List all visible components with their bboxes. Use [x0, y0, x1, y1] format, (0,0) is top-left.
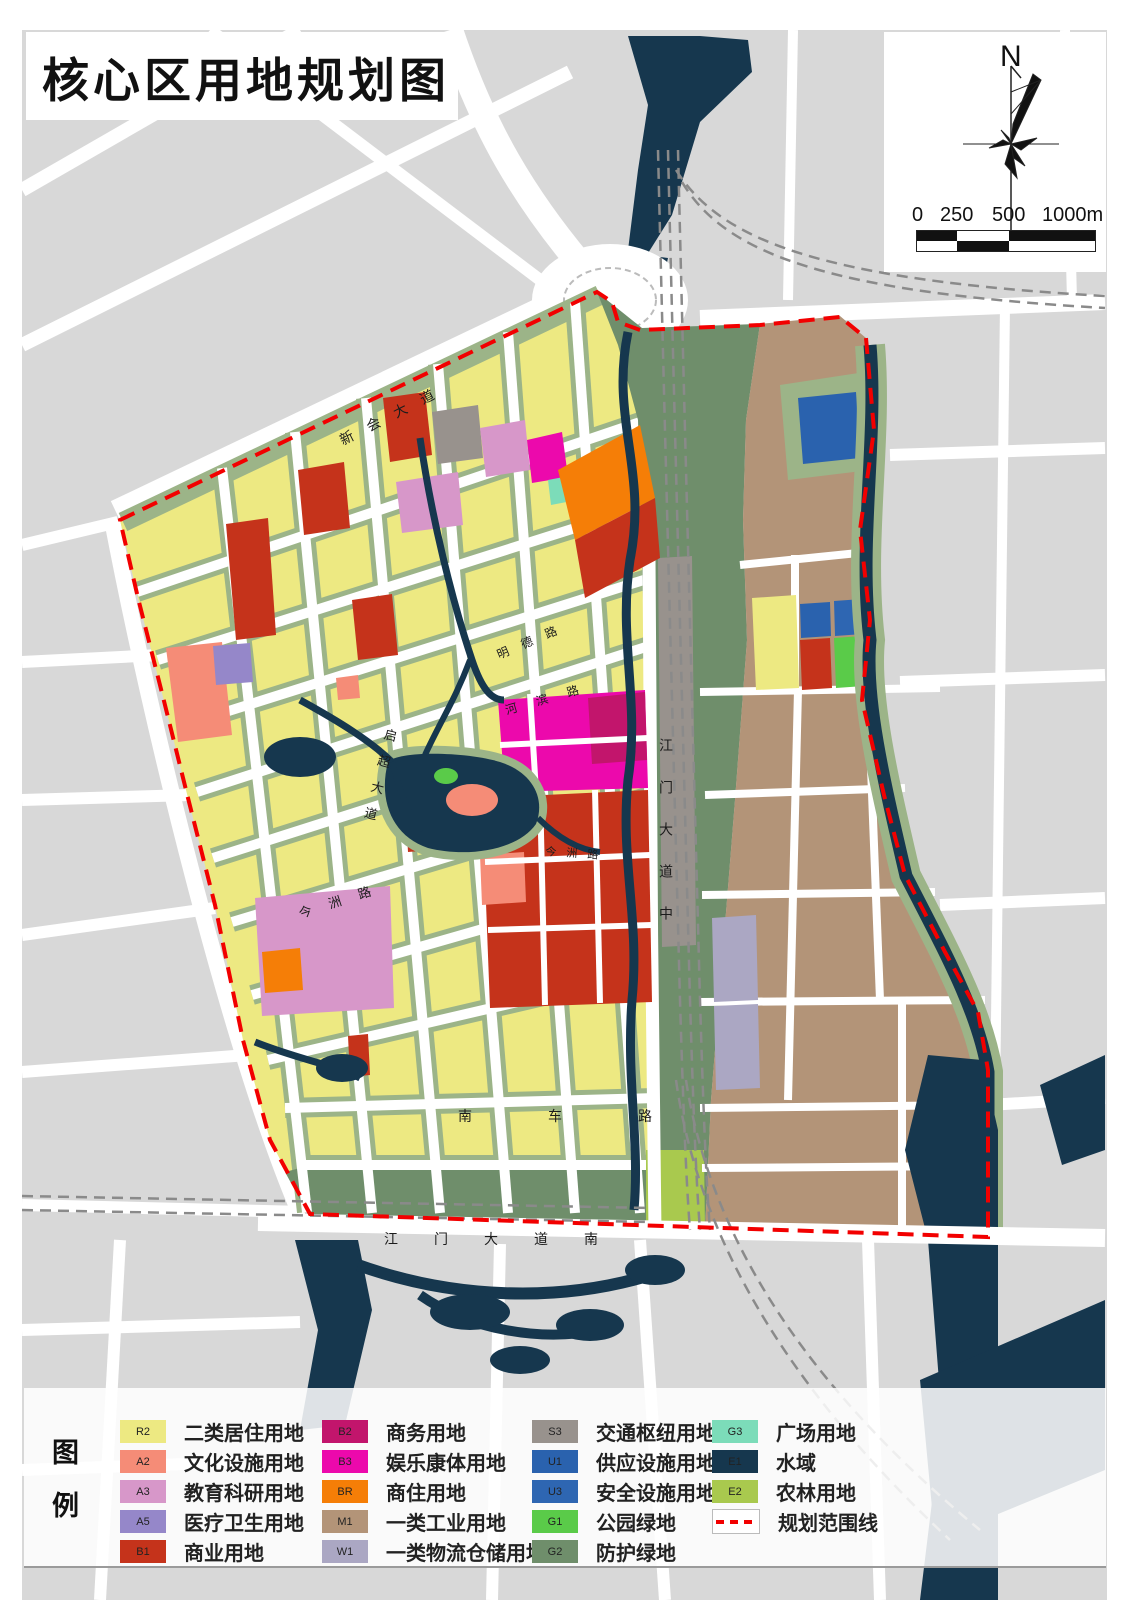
legend-item-b1: B1 商业用地 [120, 1540, 304, 1563]
road-label-jiangmen-avenue-middle: 江门大道中 [656, 738, 676, 948]
legend-swatch-e2: E2 [712, 1480, 758, 1503]
scale-tick-1000: 1000m [1042, 204, 1103, 227]
legend-item-br: BR 商住用地 [322, 1480, 546, 1503]
pond-south [316, 1054, 368, 1082]
scale-tick-250: 250 [940, 204, 973, 227]
legend-swatch-e1: E1 [712, 1450, 758, 1473]
legend-swatch-m1: M1 [322, 1510, 368, 1533]
legend-item-b2: B2 商务用地 [322, 1420, 546, 1443]
legend-swatch-s3: S3 [532, 1420, 578, 1443]
legend-item-g3: G3 广场用地 [712, 1420, 878, 1443]
lake-island [446, 784, 498, 816]
legend-swatch-g1: G1 [532, 1510, 578, 1533]
legend-swatch-u3: U3 [532, 1480, 578, 1503]
legend-item-b3: B3 娱乐康体用地 [322, 1450, 546, 1473]
legend-swatch-b1: B1 [120, 1540, 166, 1563]
legend-title: 图例 [44, 1438, 83, 1544]
parcel-b1-mid [352, 594, 398, 660]
parcel-u1-small-a [800, 602, 831, 638]
legend-item-g2: G2 防护绿地 [532, 1540, 716, 1563]
legend-item-g1: G1 公园绿地 [532, 1510, 716, 1533]
legend-item-e1: E1 水域 [712, 1450, 878, 1473]
legend-swatch-u1: U1 [532, 1450, 578, 1473]
road-label-jiangmen-avenue-south: 江门大道南 [384, 1229, 634, 1249]
parcel-w1-b [714, 1004, 760, 1090]
legend-item-a2: A2 文化设施用地 [120, 1450, 304, 1473]
parcel-w1-a [712, 915, 758, 1002]
legend-item-s3: S3 交通枢纽用地 [532, 1420, 716, 1443]
legend-swatch-g2: G2 [532, 1540, 578, 1563]
legend-swatch-w1: W1 [322, 1540, 368, 1563]
scale-tick-500: 500 [992, 204, 1025, 227]
legend-item-r2: R2 二类居住用地 [120, 1420, 304, 1443]
legend-item-u1: U1 供应设施用地 [532, 1450, 716, 1473]
boundary-dash-icon [716, 1520, 756, 1524]
legend-column-2: B2 商务用地 B3 娱乐康体用地 BR 商住用地 M1 一类工业用地 W1 一… [322, 1420, 546, 1570]
parcel-a3-north [480, 420, 530, 477]
legend-swatch-a2: A2 [120, 1450, 166, 1473]
planning-map-page: 新会大道 明德路 河滨路 启超大道 今洲路 今洲路 江门大道中 南车路 江门大道… [0, 0, 1129, 1600]
legend-swatch-b2: B2 [322, 1420, 368, 1443]
legend-swatch-b3: B3 [322, 1450, 368, 1473]
scale-labels: 0 250 500 1000m [884, 204, 1106, 226]
parcel-r2-east [752, 595, 799, 690]
legend-item-a5: A5 医疗卫生用地 [120, 1510, 304, 1533]
road-label-nanche-road: 南车路 [458, 1106, 728, 1126]
parcel-b2 [588, 692, 647, 764]
legend-item-m1: M1 一类工业用地 [322, 1510, 546, 1533]
legend-item-boundary: 规划范围线 [712, 1510, 878, 1533]
legend-item-u3: U3 安全设施用地 [532, 1480, 716, 1503]
legend-item-e2: E2 农林用地 [712, 1480, 878, 1503]
scale-bar [916, 230, 1096, 252]
legend-item-a3: A3 教育科研用地 [120, 1480, 304, 1503]
parcel-b1-small-east [800, 638, 832, 690]
scale-tick-0: 0 [912, 204, 923, 227]
title-box: 核心区用地规划图 [26, 32, 458, 120]
lake-islet-green [434, 768, 458, 784]
legend-divider [24, 1566, 1106, 1568]
parcel-a5 [213, 643, 253, 685]
legend-item-w1: W1 一类物流仓储用地 [322, 1540, 546, 1563]
compass-box: N 0 250 500 1000m [884, 32, 1106, 272]
legend-column-3: S3 交通枢纽用地 U1 供应设施用地 U3 安全设施用地 G1 公园绿地 G2… [532, 1420, 716, 1570]
parcel-b1-nw [298, 462, 350, 535]
page-title: 核心区用地规划图 [42, 42, 458, 111]
legend-column-1: R2 二类居住用地 A2 文化设施用地 A3 教育科研用地 A5 医疗卫生用地 … [120, 1420, 304, 1570]
legend-swatch-a5: A5 [120, 1510, 166, 1533]
legend-swatch-a3: A3 [120, 1480, 166, 1503]
legend-column-4: G3 广场用地 E1 水域 E2 农林用地 规划范围线 [712, 1420, 878, 1540]
legend-swatch-br: BR [322, 1480, 368, 1503]
parcel-s3-north [432, 405, 483, 464]
legend-swatch-r2: R2 [120, 1420, 166, 1443]
legend-swatch-boundary [712, 1509, 760, 1534]
parcel-u1 [798, 392, 860, 464]
parcel-a2-small [336, 675, 360, 700]
pond-west [264, 737, 336, 777]
legend-swatch-g3: G3 [712, 1420, 758, 1443]
parcel-br-small [262, 948, 303, 993]
